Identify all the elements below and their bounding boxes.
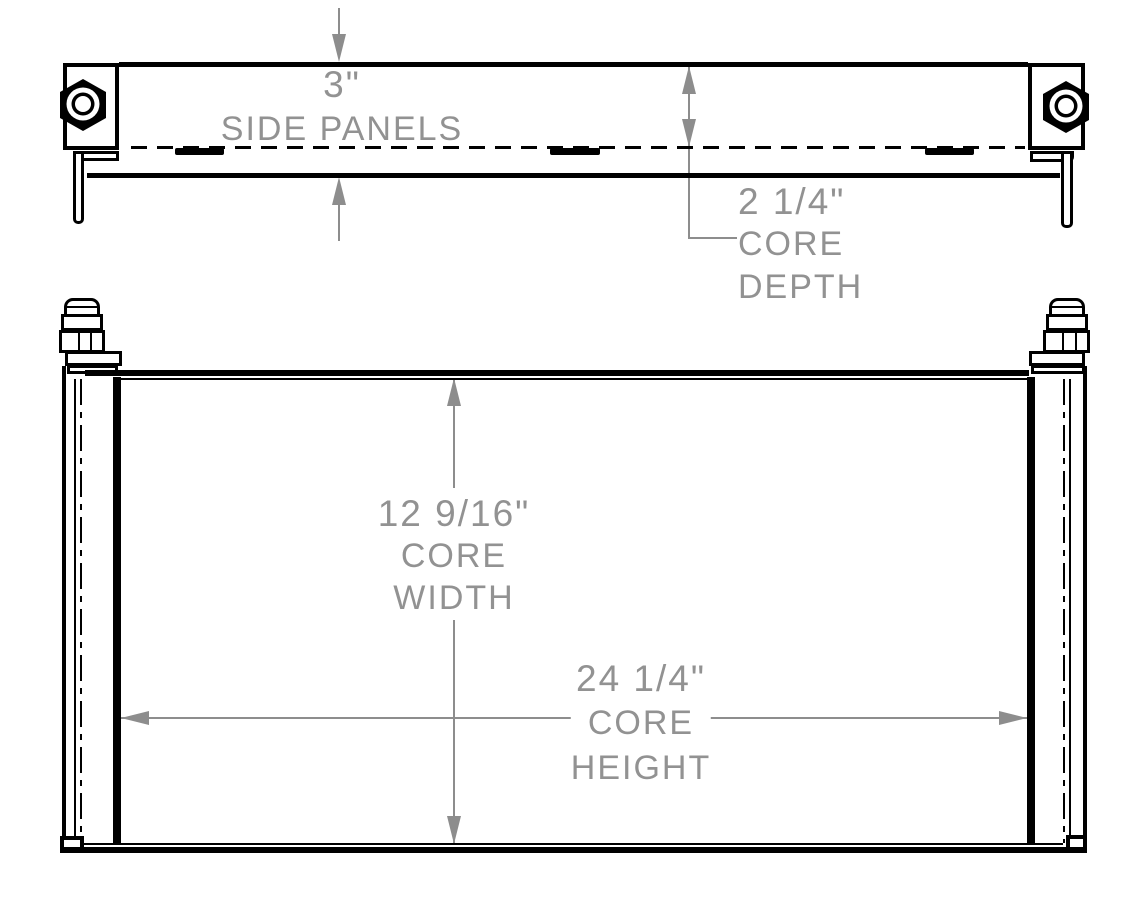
fitting-cap-line [66,306,98,308]
core-height-word1: CORE [571,701,711,746]
core-depth-word1: CORE [738,223,863,266]
technical-drawing-canvas: 3" SIDE PANELS 2 1/4" CORE DEPTH [0,0,1146,911]
fitting-band [61,314,103,331]
core-width-word2: WIDTH [378,577,531,619]
arrow-right-icon [999,711,1027,725]
core-height-value: 24 1/4" [571,656,711,701]
hex-nut-icon [1040,79,1092,135]
mounting-tab [175,148,224,155]
left-side-panel-bar [113,377,121,845]
fitting-cap-line [1051,306,1083,308]
top-plate [85,370,1029,376]
right-side-panel-bar [1027,377,1035,845]
fitting-flange [1029,351,1085,366]
core-height-word2: HEIGHT [571,746,711,791]
core-depth-dimension-label: 2 1/4" CORE DEPTH [738,180,863,309]
arrow-up-icon [447,378,461,406]
right-tank-centerline [1063,379,1065,843]
left-tank-inner-line [74,379,76,843]
arrow-down-icon [332,34,346,62]
fitting-flange [65,351,122,366]
core-depth-leader-elbow [689,237,737,239]
strip-top-edge [119,62,1028,67]
core-height-dim-line-right [702,717,1027,719]
fitting-hex [59,330,105,353]
side-panels-arrow-shaft-top [338,8,340,36]
core-width-word1: CORE [378,535,531,577]
fitting-hex-facet [1062,333,1064,350]
hex-nut-icon [57,77,109,133]
bottom-plate [60,847,1087,853]
core-height-dimension-label: 24 1/4" CORE HEIGHT [571,656,711,791]
fitting-band [1046,314,1088,331]
fitting-hex [1043,330,1090,353]
core-width-dim-line-lower [453,620,455,844]
mounting-tab [550,148,600,155]
core-width-dimension-label: 12 9/16" CORE WIDTH [378,493,531,619]
mounting-tab [925,148,974,155]
left-tank-centerline [80,379,82,843]
arrow-up-icon [332,177,346,205]
side-panels-dimension-label: 3" SIDE PANELS [221,62,463,152]
fitting-hex-facet [90,333,92,350]
core-height-dim-line-left [121,717,576,719]
top-plate-inner-line [117,378,1028,380]
left-tank-outer-wall [62,366,66,847]
core-depth-value: 2 1/4" [738,180,863,223]
arrow-left-icon [121,711,149,725]
arrow-up-icon [682,66,696,94]
strip-bottom-edge [87,173,1060,178]
core-width-value: 12 9/16" [378,493,531,535]
right-tank-inner-line [1069,379,1071,843]
arrow-down-icon [682,119,696,147]
right-bracket-tab [1061,151,1073,228]
fitting-base [1031,365,1085,374]
right-tank-outer-wall [1083,366,1087,847]
side-panels-value: 3" [221,62,463,107]
left-bracket-tab [73,151,84,224]
side-panels-arrow-shaft-bottom [338,205,340,241]
core-depth-word2: DEPTH [738,266,863,309]
bottom-plate-inner-line [83,843,1063,845]
fitting-hex-facet [1075,333,1077,350]
fitting-hex-facet [78,333,80,350]
arrow-down-icon [447,816,461,844]
